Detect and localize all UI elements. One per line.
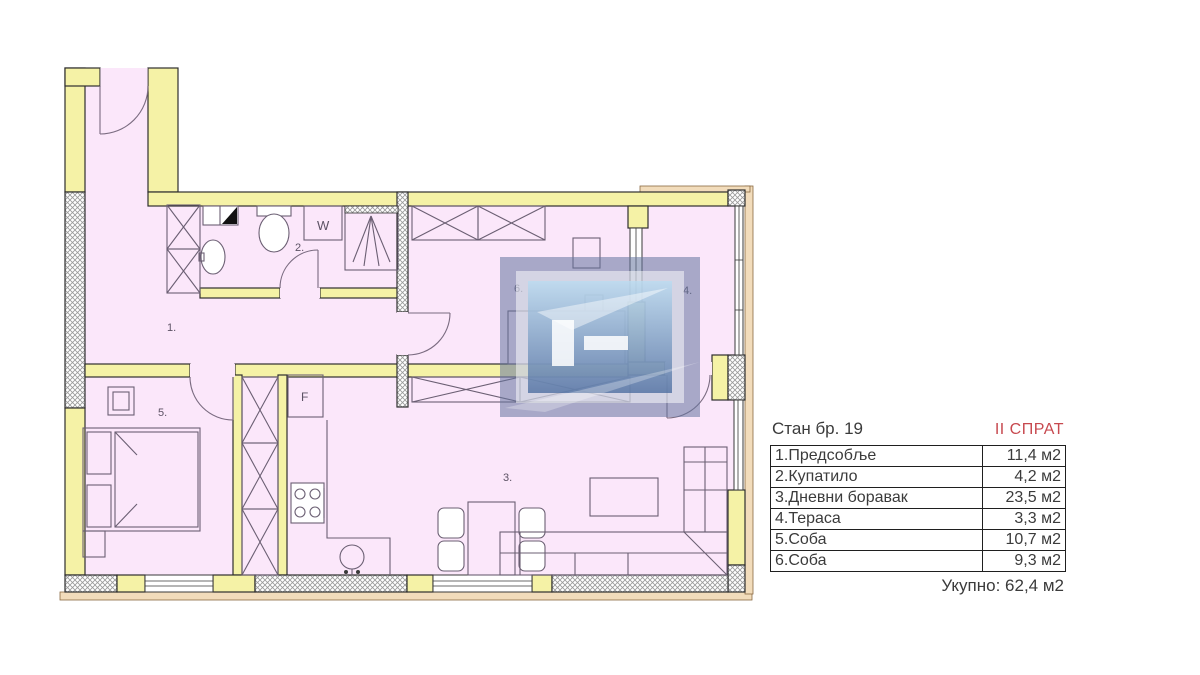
table-row: 5.Соба 10,7 м2 — [771, 530, 1066, 551]
table-row: 1.Предсобље 11,4 м2 — [771, 446, 1066, 467]
table-row: 2.Купатило 4,2 м2 — [771, 467, 1066, 488]
room-area-cell: 3,3 м2 — [983, 509, 1066, 530]
room-name-cell: 5.Соба — [771, 530, 983, 551]
room-label-hallway: 1. — [167, 322, 176, 334]
floor-plan-page: 1. 2. 3. 4. 5. 6. W F Стан бр. 19 II СПР… — [0, 0, 1200, 675]
summary-header: Стан бр. 19 II СПРАТ — [770, 419, 1066, 445]
toilet-symbol — [257, 206, 291, 252]
room-area-cell: 10,7 м2 — [983, 530, 1066, 551]
window-living — [433, 575, 532, 592]
stove-symbol — [291, 483, 324, 523]
vent-box-symbol — [203, 206, 238, 225]
area-summary: Стан бр. 19 II СПРАТ 1.Предсобље 11,4 м2… — [770, 419, 1066, 596]
window-living-right — [734, 400, 743, 490]
window-bedroom5 — [145, 575, 213, 592]
area-table: 1.Предсобље 11,4 м2 2.Купатило 4,2 м2 3.… — [770, 445, 1066, 572]
table-row: 4.Тераса 3,3 м2 — [771, 509, 1066, 530]
total-area: Укупно: 62,4 м2 — [770, 576, 1066, 596]
room-name-cell: 4.Тераса — [771, 509, 983, 530]
table-row: 6.Соба 9,3 м2 — [771, 551, 1066, 572]
room-area-cell: 11,4 м2 — [983, 446, 1066, 467]
room-label-bathroom: 2. — [295, 242, 304, 254]
glazing-terrace-right — [735, 206, 743, 355]
room-label-bedroom5: 5. — [158, 407, 167, 419]
watermark-logo — [500, 257, 700, 417]
room-area-cell: 4,2 м2 — [983, 467, 1066, 488]
room-area-cell: 23,5 м2 — [983, 488, 1066, 509]
room-label-living: 3. — [503, 472, 512, 484]
room-name-cell: 3.Дневни боравак — [771, 488, 983, 509]
room-name-cell: 1.Предсобље — [771, 446, 983, 467]
room-name-cell: 2.Купатило — [771, 467, 983, 488]
washing-machine-label: W — [317, 218, 330, 233]
unit-title: Стан бр. 19 — [772, 419, 863, 439]
room-area-cell: 9,3 м2 — [983, 551, 1066, 572]
room-name-cell: 6.Соба — [771, 551, 983, 572]
fridge-label: F — [301, 390, 308, 404]
floor-label: II СПРАТ — [995, 421, 1064, 439]
table-row: 3.Дневни боравак 23,5 м2 — [771, 488, 1066, 509]
